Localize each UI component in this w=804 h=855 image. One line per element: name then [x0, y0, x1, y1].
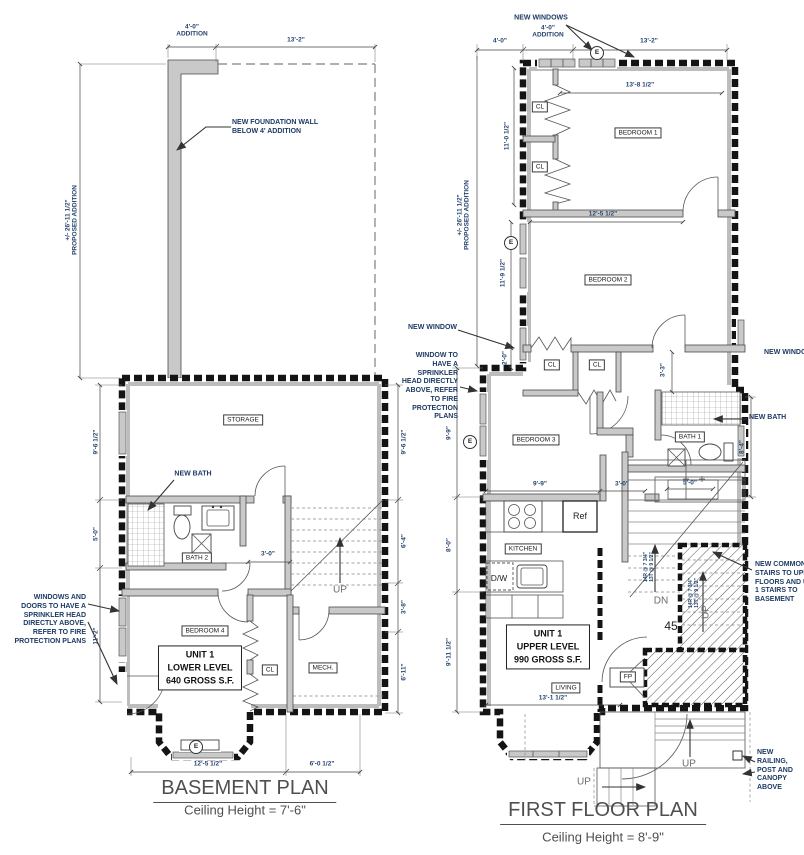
dim-basement-left-3: 11'-2" [92, 627, 99, 644]
dim-ff-proposed-addition: +/- 26'-11 1/2" PROPOSED ADDITION [457, 180, 472, 250]
basement-plan-title: BASEMENT PLAN [153, 777, 336, 803]
dim-basement-right-4: 6'-11" [400, 663, 407, 680]
dim-ff-top-width: 13'-2" [640, 37, 658, 44]
dim-ff-left-2: 11'-9 1/2" [499, 259, 506, 287]
dim-bedroom1-width: 13'-8 1/2" [626, 81, 654, 88]
annotation-new-window-left: NEW WINDOW [399, 324, 457, 333]
dim-ff-left-1: 11'-0 1/2" [503, 122, 510, 150]
fridge-label: Ref [573, 511, 587, 521]
first-floor-plan-subtitle: Ceiling Height = 8'-9" [542, 830, 664, 845]
dim-basement-top-width: 13'-2" [287, 36, 305, 43]
steps-up-label: UP [577, 777, 591, 788]
annotation-new-window-right: NEW WINDOW [764, 349, 804, 358]
first-floor-linework [452, 25, 756, 806]
dim-kitchen-width: 9'-9" [533, 480, 547, 487]
egress-symbol-bedroom2: E [504, 236, 518, 250]
dim-ff-left-6: 9'-11 1/2" [445, 638, 452, 666]
unit1-lower-level-box: UNIT 1 LOWER LEVEL 640 GROSS S.F. [158, 645, 242, 690]
dim-ff-top-left: 4'-0" [493, 37, 507, 44]
room-label-closet-3: CL [544, 359, 560, 370]
annotation-new-windows: NEW WINDOWS [514, 15, 568, 24]
room-label-bath1: BATH 1 [675, 431, 705, 442]
plan-linework [0, 0, 804, 855]
annotation-sprinkler-basement: WINDOWS AND DOORS TO HAVE A SPRINKLER HE… [6, 594, 86, 647]
room-label-closet-basement: CL [262, 664, 278, 675]
room-label-mech: MECH. [309, 662, 338, 673]
room-label-closet-4: CL [589, 359, 605, 370]
dim-hall-width: 3'-3" [659, 363, 666, 377]
room-label-bedroom1: BEDROOM 1 [614, 127, 661, 138]
dim-ff-left-5: 8'-0" [445, 538, 452, 552]
dim-basement-left-2: 5'-0" [92, 527, 99, 541]
stair-up-label-basement: UP [333, 585, 347, 596]
stair-dn-label: DN [654, 596, 668, 607]
dishwasher-label: D/W [491, 573, 508, 583]
room-label-living: LIVING [551, 682, 580, 693]
stair-note-2: 14R @ 7 3/4" 13T @ 9 1/2" [688, 578, 701, 608]
stair-note-1: 14R @ 7 3/4" 13T @ 9 1/2" [643, 552, 656, 582]
dim-basement-proposed-addition: +/- 26'-11 1/2" PROPOSED ADDITION [65, 185, 80, 255]
annotation-window-sprinkler: WINDOW TO HAVE A SPRINKLER HEAD DIRECTLY… [398, 352, 458, 422]
egress-symbol-ff-top: E [590, 46, 604, 60]
dim-basement-right-2: 6'-4" [400, 534, 407, 548]
room-label-bath2: BATH 2 [182, 552, 212, 563]
room-label-bedroom2: BEDROOM 2 [584, 274, 631, 285]
egress-symbol-bedroom3: E [463, 435, 477, 449]
stair-up-label-hatched: UP [701, 605, 712, 619]
dim-bath-door: 3'-0" [261, 550, 275, 557]
dim-bedroom2-width: 12'-5 1/2" [589, 210, 617, 217]
dim-opening: 3'-0" [615, 480, 629, 487]
dim-living-width: 13'-1 1/2" [539, 694, 567, 701]
first-floor-plan-title: FIRST FLOOR PLAN [500, 799, 706, 825]
annotation-railing: NEW RAILING, POST AND CANOPY ABOVE [757, 749, 804, 793]
dim-basement-bottom-2: 6'-0 1/2" [310, 760, 335, 767]
dim-ff-left-3: 2'-0" [501, 351, 508, 365]
room-label-bedroom4: BEDROOM 4 [181, 625, 228, 636]
egress-symbol-basement: E [189, 740, 203, 754]
basement-plan-subtitle: Ceiling Height = 7'-6" [184, 803, 306, 818]
dim-bath-height: 8'-4" [738, 440, 745, 454]
room-label-bedroom3: BEDROOM 3 [512, 434, 559, 445]
dim-basement-right-1: 9'-6 1/2" [400, 430, 407, 455]
dim-ff-addition-width: 4'-0" ADDITION [532, 25, 563, 40]
unit1-upper-level-box: UNIT 1 UPPER LEVEL 990 GROSS S.F. [506, 624, 590, 669]
dim-basement-bottom-1: 12'-5 1/2" [194, 760, 222, 767]
annotation-common-stairs: NEW COMMON STAIRS TO UPPER FLOORS AND UN… [755, 561, 804, 605]
room-label-fireplace: FP [620, 671, 636, 682]
dim-basement-addition-width: 4'-0" ADDITION [176, 24, 207, 39]
room-label-storage: STORAGE [223, 414, 263, 425]
dim-vanity: 5'-0" [683, 479, 697, 486]
room-label-closet-2: CL [532, 161, 548, 172]
annotation-new-bath-basement: NEW BATH [174, 471, 211, 480]
floor-plan-sheet: 4'-0" ADDITION 13'-2" +/- 26'-11 1/2" PR… [0, 0, 804, 855]
room-label-kitchen: KITCHEN [505, 543, 542, 554]
annotation-new-bath-ff: NEW BATH [749, 414, 799, 423]
room-label-closet-1: CL [532, 101, 548, 112]
dim-basement-left-1: 9'-6 1/2" [92, 430, 99, 455]
dim-ff-left-4: 9'-9" [445, 426, 452, 440]
annotation-new-foundation-wall: NEW FOUNDATION WALL BELOW 4' ADDITION [232, 119, 342, 137]
porch-up-label: UP [682, 759, 696, 770]
stair-number-label: 45 [664, 619, 677, 633]
dim-basement-right-3: 3'-8" [400, 600, 407, 614]
